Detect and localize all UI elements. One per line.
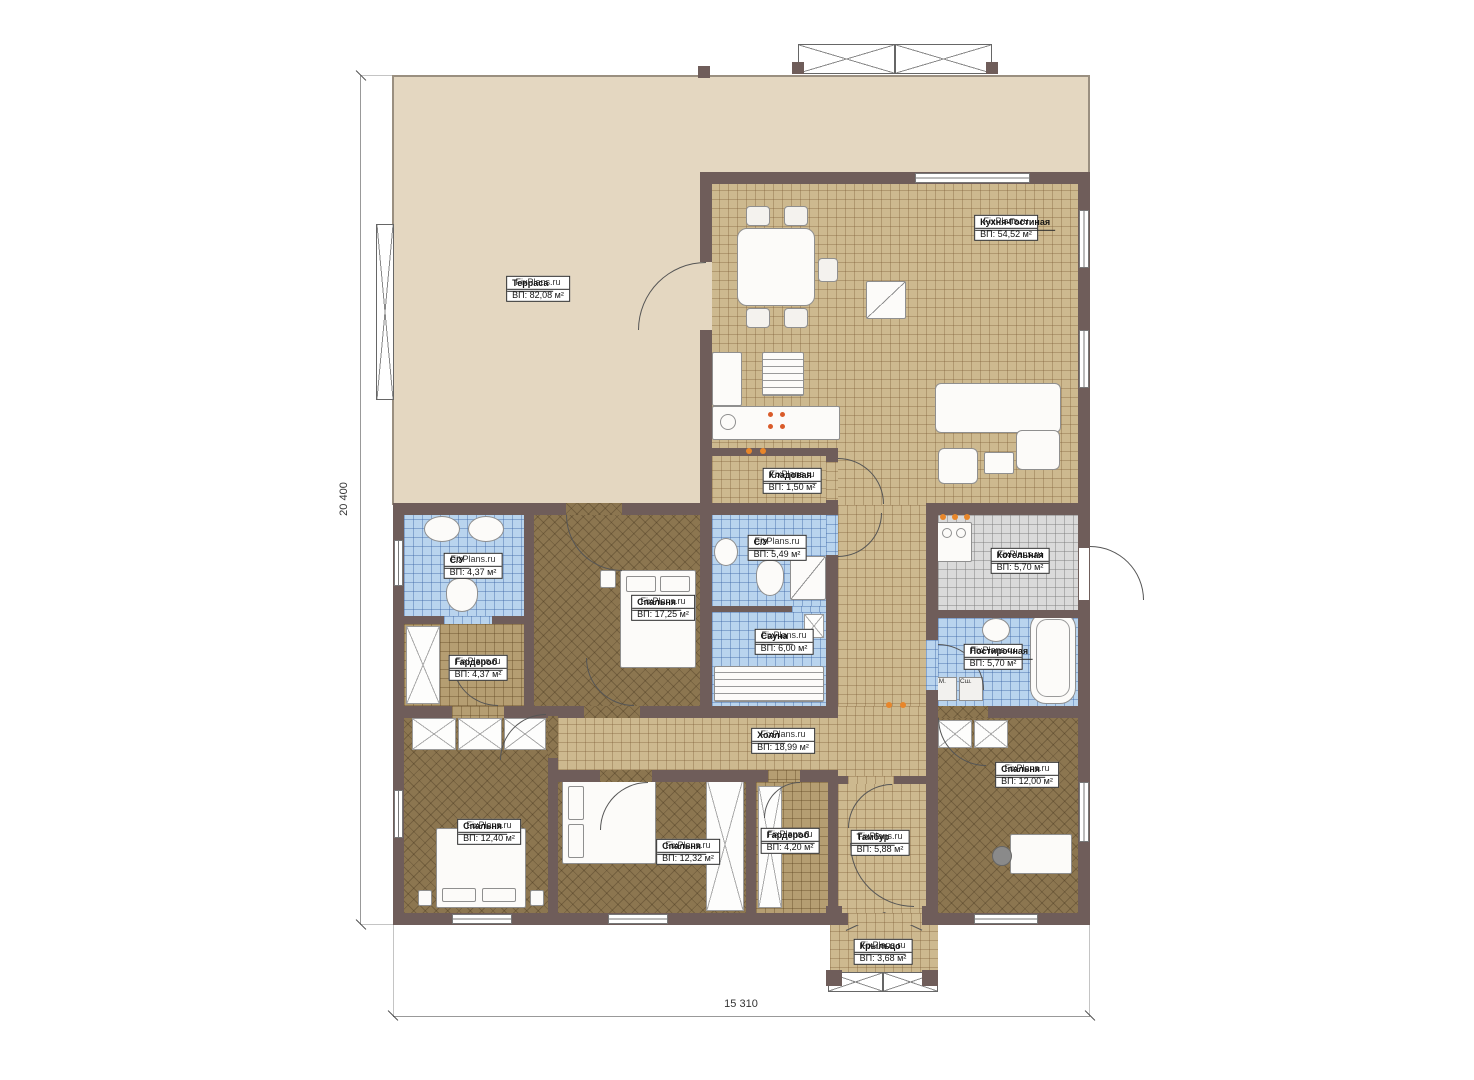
room-name: С/У (749, 536, 774, 551)
dimension-line-vertical (360, 76, 361, 925)
wall-segment (700, 172, 712, 262)
window (608, 914, 668, 924)
wall-segment (926, 718, 938, 913)
room-label-bathroom-middle: С/У FixPlans.ru ВП: 5,49 м² (748, 535, 807, 561)
wall-segment (828, 776, 838, 913)
pillow (626, 576, 656, 592)
wall-segment (712, 448, 838, 456)
pillow (442, 888, 476, 902)
room-label-wardrobe-bottom: Гардероб FixPlans.ru ВП: 4,20 м² (761, 828, 820, 854)
entry-glazing (798, 44, 895, 74)
dimension-extension (393, 925, 394, 1016)
door-opening (826, 515, 838, 555)
room-label-kitchen-living: Кухня-Гостиная FixPlans.ru ВП: 54,52 м² (974, 215, 1038, 241)
door-marker-dot (940, 514, 946, 520)
wall-segment (926, 503, 938, 640)
sink (982, 618, 1010, 642)
toilet (446, 578, 478, 612)
window (394, 790, 403, 838)
door-opening (444, 616, 492, 624)
pillow (568, 824, 584, 858)
door-opening (848, 776, 894, 784)
porch-post (826, 970, 842, 986)
floor-plan: Ст.М. Сш. Терраса FixPlans.ru ВП: 82,08 … (0, 0, 1474, 1080)
porch-post (922, 906, 938, 922)
window (394, 540, 403, 586)
wall-segment (404, 616, 444, 624)
sofa-chaise (1016, 430, 1060, 470)
room-label-bedroom-1240: Спальня FixPlans.ru ВП: 12,40 м² (457, 819, 521, 845)
window (1079, 210, 1089, 268)
boiler-dial (942, 528, 952, 538)
room-name: Гардероб (450, 656, 503, 671)
terrace-post (698, 66, 710, 78)
door-opening (452, 706, 504, 718)
room-name: Кухня-Гостиная (975, 216, 1055, 231)
closet (412, 718, 456, 750)
sink (424, 516, 460, 542)
door-marker-dot (952, 514, 958, 520)
room-name: Спальня (657, 840, 706, 855)
wall-segment (640, 706, 712, 718)
terrace-post (792, 62, 804, 74)
nightstand (530, 890, 544, 906)
door-marker-dot (886, 702, 892, 708)
boiler (936, 522, 972, 562)
room-label-bedroom-1232: Спальня FixPlans.ru ВП: 12,32 м² (656, 839, 720, 865)
room-label-laundry: Постирочная FixPlans.ru ВП: 5,70 м² (964, 644, 1023, 670)
door-marker-dot (900, 702, 906, 708)
window (1079, 782, 1089, 842)
pillow (660, 576, 690, 592)
dimension-extension (360, 924, 393, 925)
door-opening (792, 606, 826, 612)
wall-segment (556, 770, 600, 782)
wall-segment (492, 616, 534, 624)
room-label-storage: Кладовая FixPlans.ru ВП: 1,50 м² (763, 468, 822, 494)
door-opening (566, 503, 622, 515)
wall-segment (700, 330, 712, 515)
room-name: Спальня (458, 820, 507, 835)
room-name: С/У (445, 554, 470, 569)
sofa (935, 383, 1061, 433)
nightstand (418, 890, 432, 906)
wall-segment (622, 503, 838, 515)
stove-burner (780, 412, 785, 417)
toilet (756, 560, 784, 596)
sink (714, 538, 738, 566)
terrace-edge (1088, 76, 1090, 172)
chair (746, 206, 770, 226)
coffee-table (984, 452, 1014, 474)
room-label-sauna: Сауна FixPlans.ru ВП: 6,00 м² (755, 629, 814, 655)
shower (790, 556, 826, 600)
wall-segment (838, 776, 848, 784)
wall-segment (894, 776, 930, 784)
door-opening (548, 716, 558, 758)
dimension-extension (360, 75, 393, 76)
window (452, 914, 512, 924)
door-marker-dot (746, 448, 752, 454)
porch-post (826, 906, 842, 922)
door-marker-dot (964, 514, 970, 520)
room-label-bathroom-left: С/У FixPlans.ru ВП: 4,37 м² (444, 553, 503, 579)
armchair (938, 448, 978, 484)
sink (468, 516, 504, 542)
window (974, 914, 1038, 924)
wall-segment (826, 555, 838, 718)
window (1079, 330, 1089, 388)
room-name: Спальня (632, 596, 681, 611)
dimension-height-label: 20 400 (338, 477, 350, 521)
chair (818, 258, 838, 282)
entry-glazing (895, 44, 992, 74)
room-label-terrace: Терраса FixPlans.ru ВП: 82,08 м² (506, 276, 570, 302)
wall-segment (712, 606, 792, 612)
dimension-extension (1089, 925, 1090, 1016)
pillow (482, 888, 516, 902)
room-label-hall: Холл FixPlans.ru ВП: 18,99 м² (751, 728, 815, 754)
room-label-wardrobe-left: Гардероб FixPlans.ru ВП: 4,37 м² (449, 655, 508, 681)
boiler-dial (956, 528, 966, 538)
chair (746, 308, 770, 328)
wall-segment (393, 503, 566, 515)
room-label-bedroom-1200: Спальня FixPlans.ru ВП: 12,00 м² (995, 762, 1059, 788)
pillow (568, 786, 584, 820)
shelf-unit (762, 352, 804, 396)
desk-chair (992, 846, 1012, 866)
room-label-bedroom-17: Спальня FixPlans.ru ВП: 17,25 м² (631, 595, 695, 621)
nightstand (600, 570, 616, 588)
stove-burner (768, 412, 773, 417)
wall-segment (756, 770, 768, 782)
terrace-glazing (376, 224, 394, 400)
desk (1010, 834, 1072, 874)
room-label-vestibule: Тамбур FixPlans.ru ВП: 5,88 м² (851, 830, 910, 856)
bathtub (1030, 612, 1076, 704)
sauna-bench (714, 666, 824, 702)
wall-segment (988, 706, 1078, 718)
room-name: Сауна (756, 630, 793, 645)
room-name: Терраса (507, 277, 553, 292)
door-opening (826, 462, 838, 500)
closet (458, 718, 502, 750)
terrace-edge (393, 75, 1090, 77)
room-name: Котельная (992, 549, 1049, 564)
wall-segment (404, 706, 452, 718)
dimension-line-horizontal (393, 1016, 1090, 1017)
room-name: Кладовая (764, 469, 817, 484)
window (915, 173, 1030, 183)
door-opening (1079, 548, 1089, 600)
wall-segment (700, 503, 712, 718)
stove-burner (768, 424, 773, 429)
room-name: Крыльцо (855, 940, 906, 955)
kitchen-counter (712, 352, 742, 406)
stove-burner (780, 424, 785, 429)
wall-segment (926, 503, 1090, 515)
door-opening (584, 706, 640, 718)
wall-segment (712, 706, 826, 718)
wall-segment (926, 706, 938, 718)
room-label-boiler: Котельная FixPlans.ru ВП: 5,70 м² (991, 548, 1050, 574)
wall-segment (700, 172, 1090, 184)
closet (406, 626, 440, 704)
wall-segment (800, 770, 838, 782)
room-name: Гардероб (762, 829, 815, 844)
door-marker-dot (760, 448, 766, 454)
door-opening (768, 770, 800, 782)
chair (784, 206, 808, 226)
chair (784, 308, 808, 328)
wall-segment (826, 500, 838, 515)
dining-table (737, 228, 815, 306)
dimension-width-label: 15 310 (711, 998, 771, 1010)
room-label-porch: Крыльцо FixPlans.ru ВП: 3,68 м² (854, 939, 913, 965)
room-terrace-strip (710, 76, 1090, 172)
room-name: Тамбур (852, 831, 895, 846)
door-opening (848, 913, 922, 925)
room-name: Постирочная (965, 645, 1033, 660)
porch-post (922, 970, 938, 986)
door-arc (1090, 546, 1144, 600)
room-name: Холл (752, 729, 785, 744)
fireplace (866, 281, 906, 319)
wall-segment (652, 770, 756, 782)
door-opening (938, 706, 988, 718)
terrace-post (986, 62, 998, 74)
door-opening (926, 640, 938, 690)
wall-segment (524, 503, 534, 718)
room-name: Спальня (996, 763, 1045, 778)
kitchen-sink (720, 414, 736, 430)
wall-segment (938, 610, 1078, 618)
door-opening (600, 770, 652, 782)
wall-segment (746, 770, 756, 913)
bathtub-inner (1036, 619, 1070, 697)
